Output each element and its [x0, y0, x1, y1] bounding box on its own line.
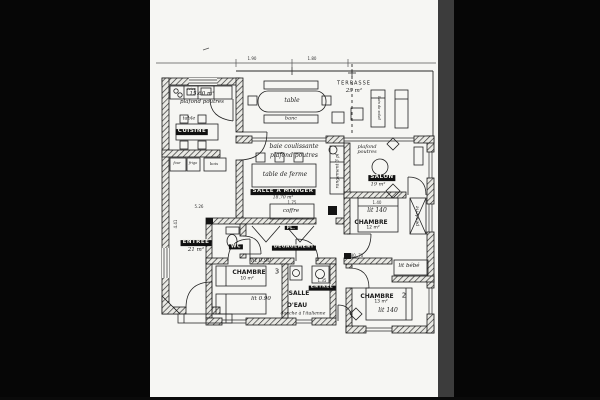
- penderie-label: penderie: [417, 206, 422, 226]
- cuisine-bois-label: bois: [210, 162, 218, 166]
- chambre3-bed2-label: lit 0.90: [251, 297, 271, 303]
- lit-bebe-label: lit bébé: [398, 264, 419, 270]
- entree-room-label: ENTREE: [181, 240, 212, 246]
- chambre1-area: 12 m²: [366, 227, 379, 232]
- rangement-label: rangement 3 pl: [337, 154, 342, 189]
- salon-area: 19 m²: [371, 182, 386, 187]
- cuisine-table-label: table: [183, 116, 196, 121]
- chambre2-area: 13 m²: [374, 301, 387, 306]
- cuisine-evier-label: évier: [187, 88, 196, 92]
- salon-ceiling-note: plafond poutres: [352, 145, 382, 156]
- terrasse-banc-label: banc: [285, 116, 297, 121]
- terrasse-label: TERRASSE: [337, 81, 371, 86]
- salle-eau-label-2: D'EAU: [287, 303, 307, 309]
- terrasse-table-label: table: [284, 98, 299, 104]
- salle-a-manger-label: SALLE A MANGER: [251, 189, 316, 195]
- baie-coulissante-note: baie coulissante: [269, 144, 318, 150]
- coffre-label: coffre: [283, 209, 299, 215]
- salon-room-label: SALON: [368, 175, 395, 181]
- cuisine-ceiling-note: plafond poutres: [180, 100, 224, 106]
- chambre3-number: 3: [275, 268, 279, 275]
- dim-coffre: 1.75: [288, 201, 297, 205]
- cuisine-frigo-label: frigo: [189, 162, 197, 166]
- floorplan-linework: [0, 0, 600, 400]
- sejour-ceiling-note: plafond poutres: [270, 153, 318, 159]
- dim-180: 1.80: [308, 57, 317, 61]
- douche-note: douche à l'italienne: [281, 313, 326, 318]
- chambre1-bed-label: lit 140: [367, 208, 387, 214]
- chambre3-room-label: CHAMBRE: [232, 270, 265, 276]
- lounger-label: bain de soleil: [376, 96, 380, 120]
- salle-eau-label-1: SALLE: [289, 291, 310, 297]
- entree-arriere-label: ENTREE: [309, 286, 336, 291]
- placard-label: PL.: [285, 226, 298, 230]
- dim-rear-door: 1.35: [318, 279, 327, 283]
- wc-room-label: WC: [229, 244, 243, 249]
- dim-190: 1.90: [248, 57, 257, 61]
- terrasse-area: 29 m²: [346, 89, 362, 95]
- dim-entree-w: 4.41: [174, 220, 178, 229]
- chambre3-area: 10 m²: [240, 278, 253, 283]
- dim-lit140: 1.40: [373, 201, 382, 205]
- cuisine-area: 15.60 m²: [190, 92, 215, 98]
- degagement-label: DEGAGEMENT: [272, 246, 316, 251]
- chambre2-number: 2: [402, 292, 406, 299]
- entree-area: 21 m²: [188, 248, 204, 254]
- dim-entree-h: 5.26: [195, 205, 204, 209]
- chambre2-bed-label: lit 140: [378, 308, 398, 314]
- cuisine-room-label: CUISINE: [176, 129, 208, 135]
- floor-plan-scan: 1.90 1.80 TERRASSE 29 m² table banc bain…: [0, 0, 600, 400]
- dim-doors: 80 70: [351, 254, 364, 258]
- chambre3-bed1-label: lit 0.90: [251, 259, 271, 265]
- cuisine-four-label: four: [173, 162, 180, 166]
- table-de-ferme-label: table de ferme: [263, 172, 307, 178]
